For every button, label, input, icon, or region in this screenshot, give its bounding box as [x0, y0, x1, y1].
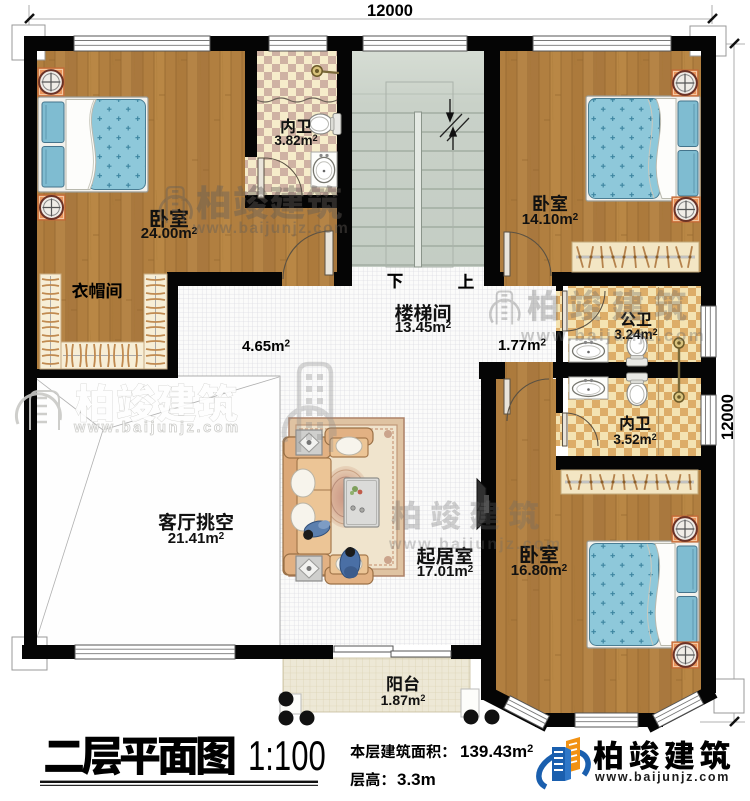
- svg-text:139.43m2: 139.43m2: [460, 742, 533, 761]
- svg-text:www.baijunjz.com: www.baijunjz.com: [388, 536, 562, 553]
- svg-text:www.baijunjz.com: www.baijunjz.com: [73, 420, 241, 436]
- svg-text:1:100: 1:100: [248, 732, 326, 779]
- svg-text:16.80m2: 16.80m2: [511, 562, 568, 579]
- svg-text:4.65m2: 4.65m2: [242, 338, 291, 355]
- svg-text:www.baijunjz.com: www.baijunjz.com: [192, 220, 349, 237]
- svg-text:12000: 12000: [367, 2, 413, 20]
- svg-text:14.10m2: 14.10m2: [522, 211, 579, 228]
- svg-text:12000: 12000: [719, 394, 737, 440]
- svg-text:www.baijunjz.com: www.baijunjz.com: [594, 770, 730, 784]
- svg-text:1.87m2: 1.87m2: [381, 692, 426, 708]
- svg-text:3.3m: 3.3m: [397, 770, 436, 789]
- svg-text:3.82m2: 3.82m2: [274, 133, 317, 148]
- svg-text:17.01m2: 17.01m2: [417, 563, 474, 580]
- svg-text:21.41m2: 21.41m2: [168, 530, 225, 547]
- svg-text:www.baijunjz.com: www.baijunjz.com: [520, 326, 706, 345]
- svg-text:3.52m2: 3.52m2: [613, 432, 656, 447]
- svg-text:13.45m2: 13.45m2: [395, 319, 452, 336]
- svg-text:24.00m2: 24.00m2: [141, 225, 198, 242]
